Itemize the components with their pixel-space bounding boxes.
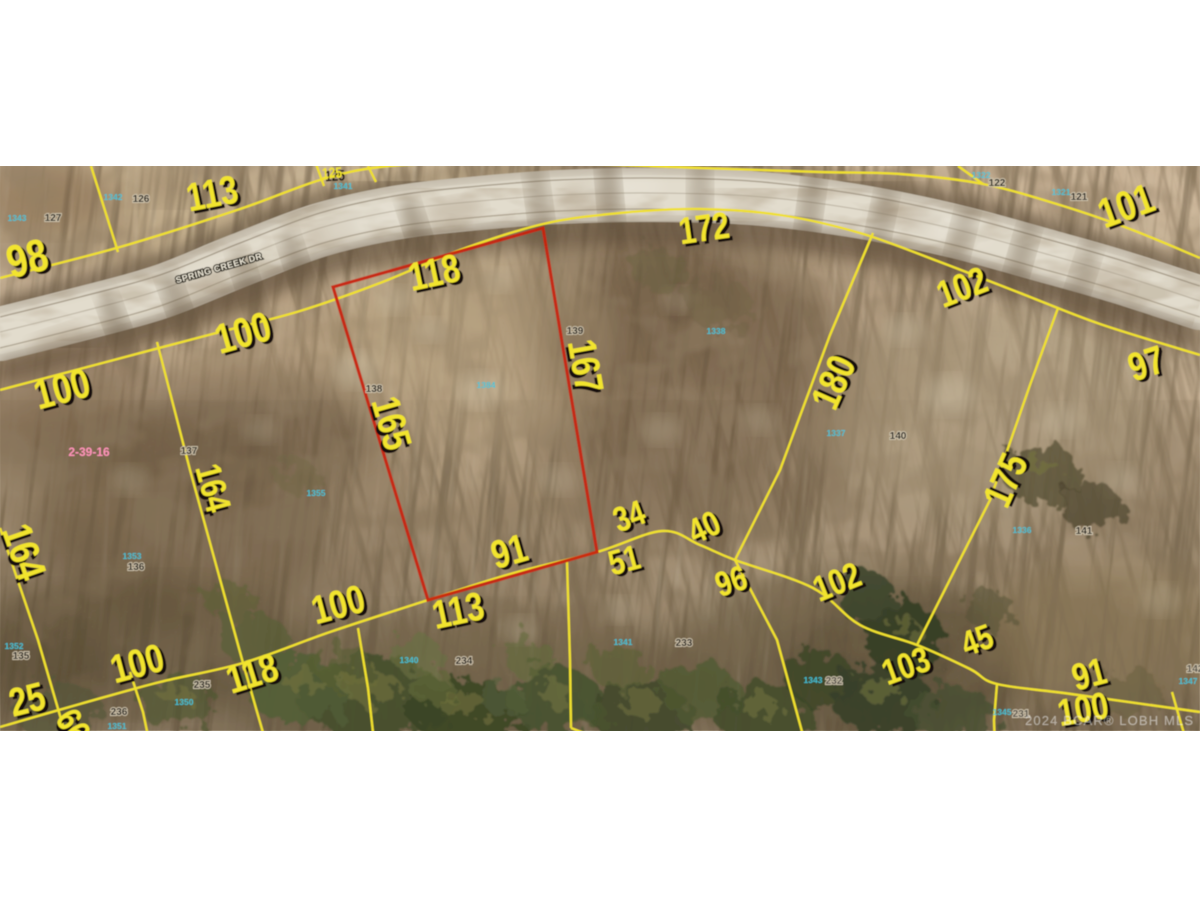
svg-text:1347: 1347 [1179,676,1198,686]
svg-text:135: 135 [13,651,30,662]
svg-text:1342: 1342 [104,192,123,202]
svg-text:138: 138 [366,384,383,395]
svg-text:122: 122 [989,178,1006,189]
svg-text:1341: 1341 [614,637,633,647]
svg-text:236: 236 [111,707,128,718]
svg-text:142: 142 [1187,664,1200,675]
svg-text:121: 121 [1071,192,1088,203]
svg-text:1322: 1322 [972,170,991,180]
svg-text:1352: 1352 [5,641,24,651]
svg-text:113: 113 [182,166,241,220]
svg-text:233: 233 [676,638,693,649]
svg-text:2-39-16: 2-39-16 [68,445,110,459]
svg-text:1341: 1341 [334,181,353,191]
svg-text:1384: 1384 [477,380,496,390]
svg-text:1345: 1345 [993,707,1012,717]
svg-text:235: 235 [194,680,211,691]
svg-text:126: 126 [133,194,150,205]
svg-text:141: 141 [1076,526,1093,537]
svg-text:139: 139 [567,326,584,337]
svg-text:1321: 1321 [1052,187,1071,197]
svg-text:1355: 1355 [307,488,326,498]
svg-text:137: 137 [181,446,198,457]
svg-text:1353: 1353 [123,551,142,561]
svg-text:1343: 1343 [804,675,823,685]
svg-text:1343: 1343 [8,213,27,223]
svg-text:1351: 1351 [108,721,127,731]
svg-text:127: 127 [45,213,62,224]
svg-text:1340: 1340 [400,655,419,665]
svg-text:232: 232 [826,676,843,687]
svg-text:1338: 1338 [707,326,726,336]
svg-text:234: 234 [456,656,473,667]
svg-text:140: 140 [890,431,907,442]
svg-text:167: 167 [559,336,613,396]
svg-text:1350: 1350 [175,697,194,707]
svg-text:172: 172 [676,205,732,254]
svg-text:1337: 1337 [827,428,846,438]
svg-text:136: 136 [128,562,145,573]
svg-text:1336: 1336 [1013,525,1032,535]
svg-text:2024 BCAR® LOBH MLS: 2024 BCAR® LOBH MLS [1025,713,1193,728]
svg-text:125: 125 [322,164,343,182]
